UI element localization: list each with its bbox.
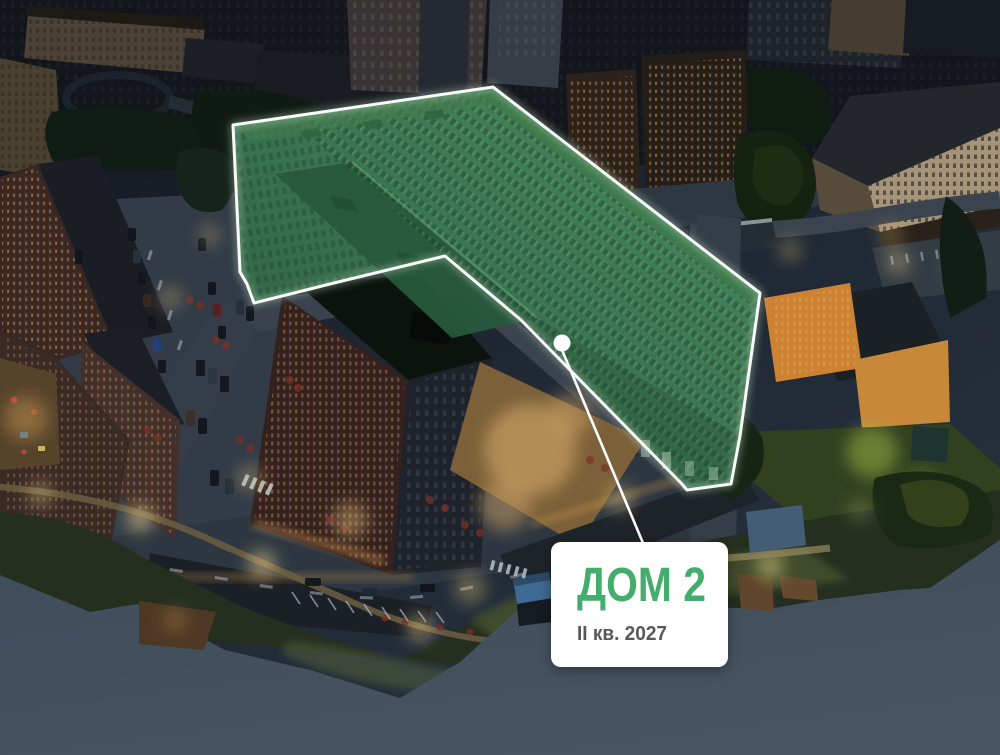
svg-text:ДОМ 2: ДОМ 2: [577, 559, 706, 612]
svg-text:II кв. 2027: II кв. 2027: [577, 623, 667, 645]
